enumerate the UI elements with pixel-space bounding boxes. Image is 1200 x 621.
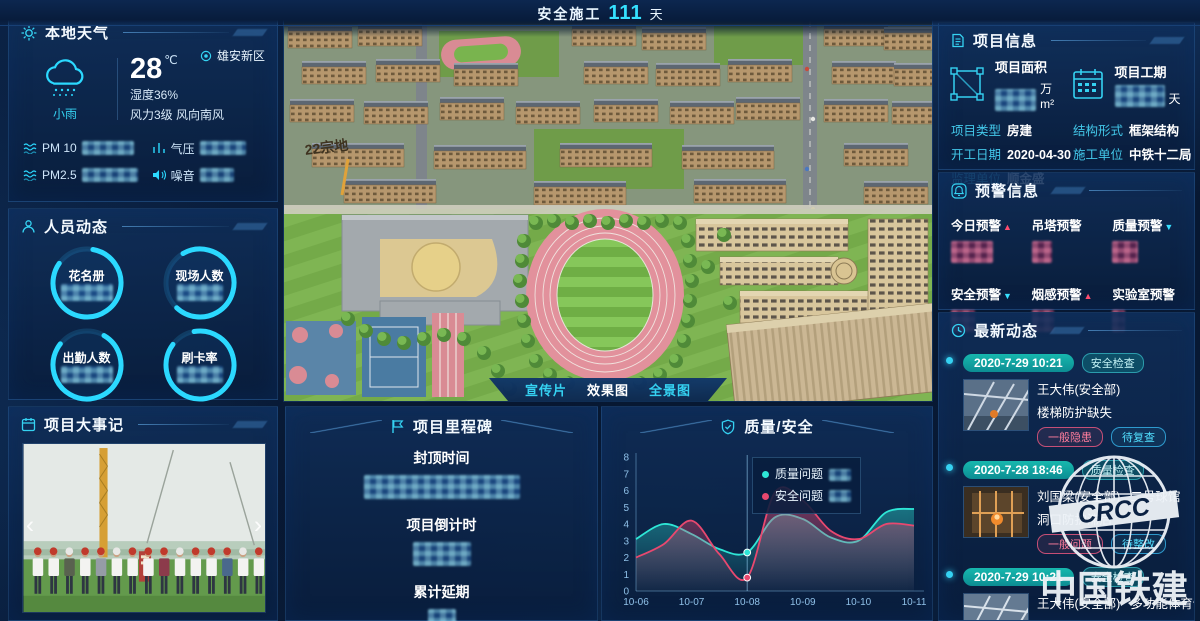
attendance-count	[61, 366, 113, 383]
milestone-countdown: 项目倒计时	[286, 515, 597, 571]
alert-quality: 质量预警▼	[1112, 215, 1182, 268]
update-time-badge: 2020-7-29 10:21	[963, 568, 1074, 586]
milestone-delay: 累计延期	[286, 582, 597, 621]
hazard-level-tag: 一般问题	[1037, 534, 1103, 554]
location-badge: 雄安新区	[200, 47, 265, 64]
field-start-date: 开工日期2020-04-30	[951, 144, 1071, 163]
svg-text:10-11: 10-11	[902, 597, 927, 608]
trend-down-icon: ▼	[1164, 222, 1173, 232]
metric-pm25: PM2.5	[23, 167, 146, 184]
timeline-dot	[946, 357, 953, 364]
project-info-title: 项目信息	[973, 30, 1037, 51]
schedule-calendar-icon	[1069, 65, 1107, 103]
countdown-value	[413, 542, 471, 566]
ring-swipe-rate: 刷卡率	[154, 325, 246, 405]
site-3d-view[interactable]: 22宗地 宣传片 效果图 全景图	[283, 8, 933, 402]
metric-noise: 噪音	[152, 167, 263, 184]
top-header: 安全施工 111 天	[0, 0, 1200, 26]
alert-today-count	[951, 241, 993, 263]
event-photo: ‹ ›	[22, 443, 266, 613]
stat-project-area: 项目面积 万m²	[947, 57, 1065, 111]
issue-text: 洞口防护滞后	[1037, 509, 1180, 528]
svg-text:2: 2	[623, 553, 629, 564]
location-pin-icon	[200, 50, 212, 62]
alert-quality-count	[1112, 241, 1138, 263]
trend-up-icon: ▲	[1003, 222, 1012, 232]
carousel-prev-arrow[interactable]: ‹	[26, 514, 34, 538]
haze-icon	[23, 142, 37, 154]
tab-rendering[interactable]: 效果图	[587, 380, 629, 399]
update-item[interactable]: 2020-7-29 10:21 安全检查 王大伟(安全部) 楼梯防护缺失 一般隐…	[963, 353, 1186, 447]
weather-panel: 本地天气 雄安新区 小雨 28℃ 湿度36% 风力3级 风向南风	[8, 14, 278, 202]
ring-onsite: 现场人数	[154, 243, 246, 323]
calendar-icon	[21, 417, 36, 432]
field-contractor: 施工单位中铁十二局	[1073, 144, 1192, 163]
person-icon	[21, 219, 36, 234]
roster-count	[61, 284, 113, 301]
timeline-dot	[946, 464, 953, 471]
chart-tooltip: 质量问题 安全问题	[752, 457, 861, 514]
alert-crane: 吊塔预警	[1032, 215, 1109, 268]
update-type-badge: 质量检查	[1082, 460, 1144, 480]
quality-safety-panel: 质量/安全 01234567810-0610-0710-0810-0910-10…	[601, 406, 933, 621]
delay-value	[428, 609, 456, 621]
updates-title: 最新动态	[974, 320, 1038, 341]
onsite-count	[177, 284, 223, 301]
inspector-name: 王大伟(安全部)	[1037, 593, 1120, 612]
pm25-value	[82, 168, 138, 182]
update-time-badge: 2020-7-28 18:46	[963, 461, 1074, 479]
sun-icon	[21, 25, 37, 41]
svg-text:7: 7	[623, 469, 629, 480]
safety-series-label: 安全问题	[775, 486, 823, 508]
photo-thumbnail	[963, 486, 1029, 538]
metric-pm10: PM 10	[23, 140, 146, 157]
wind-text: 风力3级 风向南风	[130, 106, 224, 126]
noise-value	[200, 168, 234, 182]
alert-crane-count	[1032, 241, 1052, 263]
stat-project-duration: 项目工期 天	[1069, 57, 1187, 111]
svg-text:10-10: 10-10	[846, 597, 872, 608]
hazard-level-tag: 一般隐患	[1037, 427, 1103, 447]
safety-series-value	[829, 490, 851, 502]
ring-roster: 花名册	[41, 243, 133, 323]
days-unit: 天	[650, 4, 663, 23]
quality-series-value	[829, 469, 851, 481]
photo-thumbnail	[963, 593, 1029, 621]
svg-text:6: 6	[623, 486, 629, 497]
safety-construction-label: 安全施工	[537, 4, 601, 24]
status-tag: 待复查	[1111, 427, 1166, 447]
location-name: 雄安新区	[217, 47, 265, 64]
personnel-title: 人员动态	[44, 216, 108, 237]
location-name: 二号球馆	[1130, 486, 1180, 505]
field-structure: 结构形式框架结构	[1073, 120, 1192, 139]
pm10-value	[82, 141, 134, 155]
carousel-next-arrow[interactable]: ›	[254, 514, 262, 538]
svg-text:4: 4	[623, 520, 629, 531]
gauge-icon	[152, 142, 166, 154]
alerts-title: 预警信息	[975, 180, 1039, 201]
milestone-topping-time: 封顶时间	[286, 448, 597, 504]
ring-attendance: 出勤人数	[41, 325, 133, 405]
pressure-value	[200, 141, 246, 155]
alerts-panel: 预警信息 今日预警▲ 吊塔预警 质量预警▼ 安全预警▼ 烟感预警▲	[938, 172, 1195, 310]
photo-thumbnail	[963, 379, 1029, 431]
svg-text:10-07: 10-07	[679, 597, 705, 608]
inspector-name: 刘国梁(安全部)	[1037, 486, 1120, 505]
svg-text:10-06: 10-06	[623, 597, 649, 608]
svg-text:8: 8	[623, 453, 629, 464]
clock-icon	[951, 323, 966, 338]
tab-promo-video[interactable]: 宣传片	[525, 380, 567, 399]
shield-check-icon	[720, 419, 736, 435]
area-survey-icon	[947, 64, 987, 104]
weather-condition: 小雨	[25, 105, 105, 122]
update-item[interactable]: 2020-7-29 10:21 安全检查 王大伟(安全部)多功能体育馆 楼梯防护…	[963, 567, 1186, 621]
timeline-dot	[946, 571, 953, 578]
temperature-value: 28	[130, 53, 162, 85]
milestone-title: 项目里程碑	[413, 416, 493, 437]
dashboard: 22宗地 宣传片 效果图 全景图 安全施工 111 天 本地天气	[0, 0, 1200, 621]
quality-safety-title: 质量/安全	[744, 416, 813, 437]
document-icon	[951, 33, 965, 48]
temperature-unit: ℃	[164, 53, 177, 67]
alert-today: 今日预警▲	[951, 215, 1028, 268]
safety-series-dot	[762, 493, 769, 500]
location-name: 多功能体育馆	[1130, 593, 1195, 612]
speaker-icon	[152, 169, 166, 181]
events-title: 项目大事记	[44, 414, 124, 435]
safety-days-count: 111	[608, 2, 642, 25]
update-time-badge: 2020-7-29 10:21	[963, 354, 1074, 372]
haze-icon	[23, 169, 37, 181]
issue-text: 楼梯防护缺失	[1037, 402, 1166, 421]
trend-down-icon: ▼	[1003, 291, 1012, 301]
quality-series-dot	[762, 471, 769, 478]
humidity-text: 湿度36%	[130, 86, 224, 106]
project-area-value	[995, 89, 1036, 111]
issue-text: 楼梯防护缺失	[1037, 616, 1186, 621]
update-item[interactable]: 2020-7-28 18:46 质量检查 刘国梁(安全部)二号球馆 洞口防护滞后…	[963, 460, 1186, 554]
update-type-badge: 安全检查	[1082, 567, 1144, 587]
svg-text:0: 0	[623, 587, 629, 598]
latest-updates-panel: 最新动态 2020-7-29 10:21 安全检查 王大伟(安全部) 楼梯防护缺…	[938, 312, 1195, 621]
svg-text:10-09: 10-09	[790, 597, 816, 608]
svg-text:10-08: 10-08	[734, 597, 760, 608]
milestone-photo-panel: 项目大事记	[8, 406, 278, 621]
quality-series-label: 质量问题	[775, 464, 823, 486]
personnel-panel: 人员动态 花名册 现场人数 出勤人数 刷卡率	[8, 208, 278, 400]
metric-pressure: 气压	[152, 140, 263, 157]
cloud-rain-icon	[39, 57, 91, 99]
topping-time-value	[364, 475, 520, 499]
svg-text:1: 1	[623, 570, 629, 581]
update-type-badge: 安全检查	[1082, 353, 1144, 373]
status-tag: 待整改	[1111, 534, 1166, 554]
svg-text:5: 5	[623, 503, 629, 514]
swipe-rate-value	[177, 366, 223, 383]
project-duration-value	[1115, 85, 1165, 107]
project-info-panel: 项目信息 项目面积 万m² 项目工期 天	[938, 22, 1195, 170]
trend-up-icon: ▲	[1084, 291, 1093, 301]
svg-text:3: 3	[623, 536, 629, 547]
milestone-panel: 项目里程碑 封顶时间 项目倒计时 累计延期	[285, 406, 598, 621]
field-project-type: 项目类型房建	[951, 120, 1071, 139]
alarm-bell-icon	[951, 183, 967, 199]
tab-panorama[interactable]: 全景图	[649, 380, 691, 399]
inspector-name: 王大伟(安全部)	[1037, 379, 1120, 398]
flag-icon	[390, 419, 405, 434]
view-tabs: 宣传片 效果图 全景图	[489, 378, 727, 401]
campus-render: 22宗地	[284, 9, 933, 402]
